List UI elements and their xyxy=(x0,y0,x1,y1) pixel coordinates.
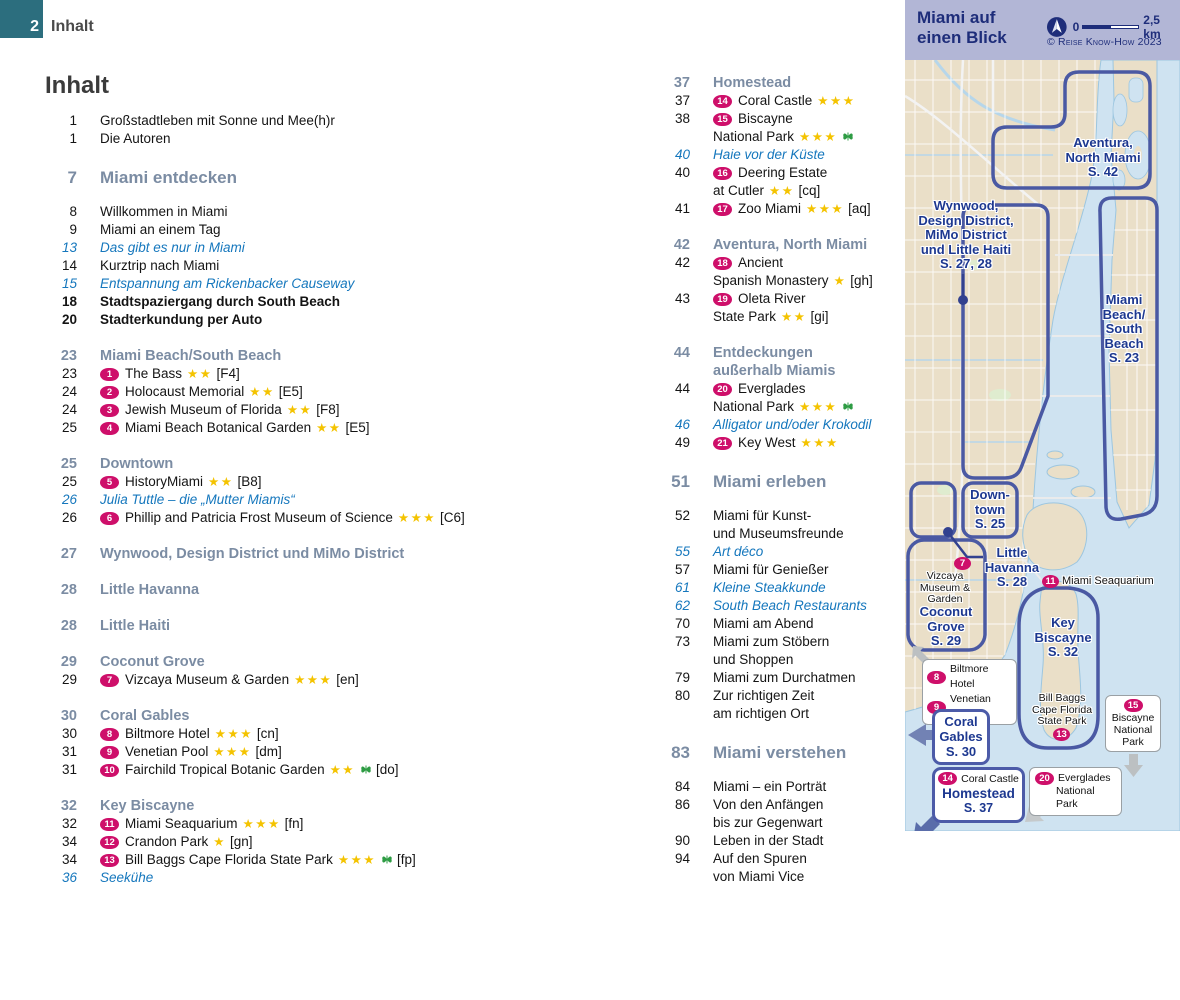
callout-coral-gables-text: Coral Gables S. 30 xyxy=(935,712,987,759)
toc-row: 18 Stadtspaziergang durch South Beach xyxy=(45,293,635,311)
toc-row: 83 Miami verstehen xyxy=(658,743,903,763)
toc-row: 84 Miami – ein Porträt xyxy=(658,778,903,796)
toc-row: 20 Stadterkundung per Auto xyxy=(45,311,635,329)
page-number-tab: 2 xyxy=(0,0,43,38)
toc-row: 40 Haie vor der Küste xyxy=(658,146,903,164)
toc-page-number xyxy=(658,868,690,886)
map-badge-everglades: 20 xyxy=(1035,772,1054,785)
toc-row: und Shoppen xyxy=(658,651,903,669)
toc-row: 70 Miami am Abend xyxy=(658,615,903,633)
toc-row: 24 2Holocaust Memorial★★[E5] xyxy=(45,383,635,401)
map-grid-ref: [F8] xyxy=(316,402,339,417)
toc-row: 23 1The Bass★★[F4] xyxy=(45,365,635,383)
toc-page-number: 37 xyxy=(658,74,690,92)
toc-entry-text: Aventura, North Miami xyxy=(713,237,867,253)
toc-row: at Cutler★★[cq] xyxy=(658,182,903,200)
rating-stars: ★★★ xyxy=(338,853,376,867)
toc-page-number: 34 xyxy=(45,833,77,851)
toc-page-number xyxy=(658,308,690,326)
rating-stars: ★★★ xyxy=(817,94,855,108)
poi-badge: 11 xyxy=(100,818,119,831)
poi-badge: 5 xyxy=(100,476,119,489)
toc-entry-text: South Beach Restaurants xyxy=(713,598,867,613)
poi-badge: 7 xyxy=(100,674,119,687)
toc-entry-text: Oleta River xyxy=(738,291,806,306)
toc-entry-text: Zoo Miami xyxy=(738,201,801,216)
toc-page-number: 80 xyxy=(658,687,690,705)
toc-page-number: 44 xyxy=(658,344,690,362)
toc-entry-text: Fairchild Tropical Botanic Garden xyxy=(125,762,325,777)
toc-row: 34 13Bill Baggs Cape Florida State Park★… xyxy=(45,851,635,869)
toc-row: 25 4Miami Beach Botanical Garden★★[E5] xyxy=(45,419,635,437)
toc-entry-text: Wynwood, Design District und MiMo Distri… xyxy=(100,546,404,562)
toc-page-number: 70 xyxy=(658,615,690,633)
toc-page-number: 41 xyxy=(658,200,690,218)
toc-row: 27 Wynwood, Design District und MiMo Dis… xyxy=(45,545,635,563)
toc-page-number: 73 xyxy=(658,633,690,651)
toc-entry-text: Zur richtigen Zeit xyxy=(713,688,814,703)
toc-row: 51 Miami erleben xyxy=(658,472,903,492)
callout-biltmore-text: Biltmore Hotel xyxy=(950,662,1012,692)
map-grid-ref: [gh] xyxy=(850,273,873,288)
scale-bar-filled xyxy=(1082,25,1110,29)
toc-entry-text: Julia Tuttle – die „Mutter Miamis“ xyxy=(100,492,295,507)
map-grid-ref: [B8] xyxy=(237,474,261,489)
toc-entry-text: Miami für Genießer xyxy=(713,562,829,577)
page-title: Inhalt xyxy=(45,72,109,100)
toc-entry-text: Kleine Steakkunde xyxy=(713,580,826,595)
map-grid-ref: [E5] xyxy=(279,384,303,399)
toc-page-number: 31 xyxy=(45,743,77,761)
toc-entry-text: Miami zum Stöbern xyxy=(713,634,829,649)
poi-badge: 15 xyxy=(713,113,732,126)
rating-stars: ★★ xyxy=(781,310,806,324)
toc-entry-text: Leben in der Stadt xyxy=(713,833,823,848)
toc-entry-text: Miami entdecken xyxy=(100,168,237,187)
toc-entry-text: Deering Estate xyxy=(738,165,827,180)
toc-entry-text: Everglades xyxy=(738,381,806,396)
toc-entry-text: Von den Anfängen xyxy=(713,797,823,812)
toc-row: National Park★★★ xyxy=(658,128,903,146)
map-grid-ref: [do] xyxy=(376,762,399,777)
toc-page-number xyxy=(658,705,690,723)
toc-page-number: 44 xyxy=(658,380,690,398)
rating-stars: ★★ xyxy=(330,763,355,777)
callout-everglades-line1: Everglades xyxy=(1058,772,1111,785)
toc-row: 52 Miami für Kunst- xyxy=(658,507,903,525)
toc-row: 26 Julia Tuttle – die „Mutter Miamis“ xyxy=(45,491,635,509)
toc-page-number: 79 xyxy=(658,669,690,687)
poi-badge: 3 xyxy=(100,404,119,417)
toc-page-number: 40 xyxy=(658,164,690,182)
toc-page-number: 62 xyxy=(658,597,690,615)
toc-entry-text: National Park xyxy=(713,399,794,414)
toc-page-number xyxy=(658,272,690,290)
toc-row: am richtigen Ort xyxy=(658,705,903,723)
toc-row: 36 Seekühe xyxy=(45,869,635,887)
toc-entry-text: Miami an einem Tag xyxy=(100,222,221,237)
toc-row: Spanish Monastery★[gh] xyxy=(658,272,903,290)
toc-entry-text: Biscayne xyxy=(738,111,793,126)
toc-row: 46 Alligator und/oder Krokodil xyxy=(658,416,903,434)
toc-row: 8 Willkommen in Miami xyxy=(45,203,635,221)
toc-row: 41 17Zoo Miami★★★[aq] xyxy=(658,200,903,218)
toc-entry-text: Vizcaya Museum & Garden xyxy=(125,672,289,687)
toc-row: 61 Kleine Steakkunde xyxy=(658,579,903,597)
poi-badge: 10 xyxy=(100,764,119,777)
nature-icon xyxy=(360,764,372,775)
page-corner-header: 2 Inhalt xyxy=(0,0,94,38)
toc-page-number: 32 xyxy=(45,815,77,833)
callout-everglades: 20 Everglades National Park xyxy=(1029,767,1122,816)
toc-entry-text: Miami – ein Porträt xyxy=(713,779,826,794)
rating-stars: ★★★ xyxy=(806,202,844,216)
toc-page-number: 25 xyxy=(45,473,77,491)
page-number: 2 xyxy=(30,18,43,38)
toc-row: 32 11Miami Seaquarium★★★[fn] xyxy=(45,815,635,833)
toc-row: 7 Miami entdecken xyxy=(45,168,635,188)
map-header: Miami auf einen Blick 0 2,5 km © Reise K… xyxy=(905,0,1180,60)
map-grid-ref: [C6] xyxy=(440,510,465,525)
poi-badge: 20 xyxy=(713,383,732,396)
toc-page-number: 27 xyxy=(45,545,77,563)
toc-row: 13 Das gibt es nur in Miami xyxy=(45,239,635,257)
map-badge-seaquarium: 11 xyxy=(1042,575,1059,588)
toc-row: 73 Miami zum Stöbern xyxy=(658,633,903,651)
map-badge-homestead: 14 xyxy=(938,772,957,785)
toc-entry-text: The Bass xyxy=(125,366,182,381)
map-body: Wynwood, Design District, MiMo District … xyxy=(905,60,1180,831)
toc-row: bis zur Gegenwart xyxy=(658,814,903,832)
toc-page-number: 49 xyxy=(658,434,690,452)
rating-stars: ★★★ xyxy=(294,673,332,687)
toc-page-number xyxy=(658,525,690,543)
toc-page-number: 1 xyxy=(45,130,77,148)
toc-entry-text: Spanish Monastery xyxy=(713,273,829,288)
toc-page-number: 94 xyxy=(658,850,690,868)
poi-badge: 6 xyxy=(100,512,119,525)
toc-row: 30 Coral Gables xyxy=(45,707,635,725)
map-label-vizcaya: Vizcaya Museum & Garden xyxy=(913,571,977,606)
toc-entry-text: State Park xyxy=(713,309,776,324)
poi-badge: 2 xyxy=(100,386,119,399)
rating-stars: ★ xyxy=(834,274,847,288)
poi-badge: 1 xyxy=(100,368,119,381)
toc-row: 14 Kurztrip nach Miami xyxy=(45,257,635,275)
toc-page-number xyxy=(658,362,690,380)
toc-entry-text: Miami erleben xyxy=(713,472,826,491)
toc-page-number: 51 xyxy=(658,472,690,492)
map-grid-ref: [gi] xyxy=(810,309,828,324)
toc-entry-text: Alligator und/oder Krokodil xyxy=(713,417,871,432)
toc-page-number: 28 xyxy=(45,581,77,599)
nature-icon xyxy=(842,131,854,142)
map-copyright: © Reise Know-How 2023 xyxy=(1047,36,1162,48)
toc-entry-text: am richtigen Ort xyxy=(713,706,809,721)
toc-entry-text: und Shoppen xyxy=(713,652,793,667)
toc-row: 90 Leben in der Stadt xyxy=(658,832,903,850)
toc-row: 25 5HistoryMiami★★[B8] xyxy=(45,473,635,491)
callout-homestead: 14Coral Castle Homestead S. 37 xyxy=(932,767,1025,823)
toc-page-number: 29 xyxy=(45,653,77,671)
callout-biscayne-np: 15 Biscayne National Park xyxy=(1105,695,1161,752)
rating-stars: ★★ xyxy=(187,367,212,381)
toc-page-number: 86 xyxy=(658,796,690,814)
rating-stars: ★★★ xyxy=(215,727,253,741)
toc-row: 42 Aventura, North Miami xyxy=(658,236,903,254)
toc-row: 42 18Ancient xyxy=(658,254,903,272)
rating-stars: ★ xyxy=(213,835,226,849)
toc-page-number xyxy=(658,814,690,832)
rating-stars: ★★★ xyxy=(398,511,436,525)
toc-row: 37 Homestead xyxy=(658,74,903,92)
toc-page-number: 25 xyxy=(45,419,77,437)
toc-entry-text: Key Biscayne xyxy=(100,798,194,814)
toc-page-number: 15 xyxy=(45,275,77,293)
rating-stars: ★★ xyxy=(287,403,312,417)
page-header-label: Inhalt xyxy=(51,18,94,38)
nature-icon xyxy=(842,401,854,412)
toc-entry-text: Little Haiti xyxy=(100,618,170,634)
toc-row: 37 14Coral Castle★★★ xyxy=(658,92,903,110)
toc-page-number: 7 xyxy=(45,168,77,188)
toc-entry-text: Miami Beach/South Beach xyxy=(100,348,281,364)
map-label-downtown: Down- town S. 25 xyxy=(965,488,1015,532)
toc-row: von Miami Vice xyxy=(658,868,903,886)
toc-row: 24 3Jewish Museum of Florida★★[F8] xyxy=(45,401,635,419)
poi-badge: 17 xyxy=(713,203,732,216)
toc-page-number: 40 xyxy=(658,146,690,164)
toc-entry-text: Entdeckungen xyxy=(713,345,813,361)
map-grid-ref: [F4] xyxy=(216,366,239,381)
toc-entry-text: Coral Castle xyxy=(738,93,812,108)
toc-entry-text: Das gibt es nur in Miami xyxy=(100,240,245,255)
toc-entry-text: Die Autoren xyxy=(100,131,171,146)
toc-page-number xyxy=(658,651,690,669)
toc-page-number: 34 xyxy=(45,851,77,869)
toc-entry-text: Downtown xyxy=(100,456,173,472)
rating-stars: ★★★ xyxy=(799,130,837,144)
toc-row: 79 Miami zum Durchatmen xyxy=(658,669,903,687)
toc-page-number: 38 xyxy=(658,110,690,128)
map-badge-bill-baggs: 13 xyxy=(1053,728,1070,741)
toc-row: 31 10Fairchild Tropical Botanic Garden★★… xyxy=(45,761,635,779)
toc-page-number: 26 xyxy=(45,491,77,509)
toc-page-number: 32 xyxy=(45,797,77,815)
map-grid-ref: [cq] xyxy=(798,183,820,198)
toc-row: 86 Von den Anfängen xyxy=(658,796,903,814)
toc-row: 40 16Deering Estate xyxy=(658,164,903,182)
toc-entry-text: außerhalb Miamis xyxy=(713,363,835,379)
toc-page-number: 13 xyxy=(45,239,77,257)
toc-entry-text: von Miami Vice xyxy=(713,869,804,884)
toc-row: 32 Key Biscayne xyxy=(45,797,635,815)
map-badge-biltmore: 8 xyxy=(927,671,946,684)
toc-page-number: 37 xyxy=(658,92,690,110)
map-grid-ref: [aq] xyxy=(848,201,871,216)
toc-page-number: 46 xyxy=(658,416,690,434)
toc-page-number: 55 xyxy=(658,543,690,561)
scale-bar-empty xyxy=(1111,25,1140,29)
toc-entry-text: HistoryMiami xyxy=(125,474,203,489)
toc-page-number: 23 xyxy=(45,347,77,365)
toc-entry-text: Haie vor der Küste xyxy=(713,147,825,162)
toc-row: 28 Little Havanna xyxy=(45,581,635,599)
toc-row: 55 Art déco xyxy=(658,543,903,561)
map-label-aventura: Aventura, North Miami S. 42 xyxy=(1061,136,1145,180)
toc-entry-text: Miami zum Durchatmen xyxy=(713,670,856,685)
toc-page-number: 24 xyxy=(45,401,77,419)
toc-entry-text: Homestead xyxy=(713,75,791,91)
toc-entry-text: Miami Beach Botanical Garden xyxy=(125,420,311,435)
map-grid-ref: [en] xyxy=(336,672,359,687)
toc-page-number: 30 xyxy=(45,707,77,725)
map-grid-ref: [E5] xyxy=(346,420,370,435)
callout-biscayne-np-text: Biscayne National Park xyxy=(1107,712,1159,748)
toc-entry-text: Little Havanna xyxy=(100,582,199,598)
toc-row: 30 8Biltmore Hotel★★★[cn] xyxy=(45,725,635,743)
toc-page-number: 25 xyxy=(45,455,77,473)
toc-page-number: 23 xyxy=(45,365,77,383)
callout-coral-gables: Coral Gables S. 30 xyxy=(932,709,990,765)
toc-row: 34 12Crandon Park★[gn] xyxy=(45,833,635,851)
toc-page-number xyxy=(658,182,690,200)
toc-page-number: 30 xyxy=(45,725,77,743)
toc-entry-text: Großstadtleben mit Sonne und Mee(h)r xyxy=(100,113,335,128)
toc-page-number: 90 xyxy=(658,832,690,850)
toc-page-number: 18 xyxy=(45,293,77,311)
poi-badge: 12 xyxy=(100,836,119,849)
poi-badge: 19 xyxy=(713,293,732,306)
toc-entry-text: Biltmore Hotel xyxy=(125,726,210,741)
toc-page-number: 36 xyxy=(45,869,77,887)
nature-icon xyxy=(381,854,393,865)
toc-page-number: 9 xyxy=(45,221,77,239)
poi-badge: 21 xyxy=(713,437,732,450)
map-label-key-biscayne: Key Biscayne S. 32 xyxy=(1033,616,1093,660)
rating-stars: ★★ xyxy=(316,421,341,435)
toc-row: 62 South Beach Restaurants xyxy=(658,597,903,615)
toc-entry-text: Bill Baggs Cape Florida State Park xyxy=(125,852,333,867)
rating-stars: ★★★ xyxy=(801,436,839,450)
toc-row: 31 9Venetian Pool★★★[dm] xyxy=(45,743,635,761)
toc-entry-text: Stadtspaziergang durch South Beach xyxy=(100,294,340,309)
toc-entry-text: Coconut Grove xyxy=(100,654,205,670)
toc-row: 9 Miami an einem Tag xyxy=(45,221,635,239)
toc-row: 25 Downtown xyxy=(45,455,635,473)
toc-entry-text: Ancient xyxy=(738,255,783,270)
toc-page-number: 14 xyxy=(45,257,77,275)
toc-entry-text: National Park xyxy=(713,129,794,144)
toc-page-number: 26 xyxy=(45,509,77,527)
toc-page-number: 52 xyxy=(658,507,690,525)
toc-entry-text: bis zur Gegenwart xyxy=(713,815,823,830)
toc-entry-text: Venetian Pool xyxy=(125,744,208,759)
toc-row: 29 Coconut Grove xyxy=(45,653,635,671)
poi-badge: 4 xyxy=(100,422,119,435)
toc-row: 57 Miami für Genießer xyxy=(658,561,903,579)
map-label-little-havanna: Little Havanna S. 28 xyxy=(979,546,1045,590)
map-grid-ref: [dm] xyxy=(255,744,281,759)
map-grid-ref: [cn] xyxy=(257,726,279,741)
toc-entry-text: und Museumsfreunde xyxy=(713,526,844,541)
map-badge-biscayne-np: 15 xyxy=(1124,699,1143,712)
map-label-wynwood: Wynwood, Design District, MiMo District … xyxy=(911,199,1021,272)
toc-page-number: 83 xyxy=(658,743,690,763)
callout-homestead-page: S. 37 xyxy=(935,801,1022,815)
poi-badge: 13 xyxy=(100,854,119,867)
toc-entry-text: Kurztrip nach Miami xyxy=(100,258,219,273)
toc-row: 1 Großstadtleben mit Sonne und Mee(h)r xyxy=(45,112,635,130)
toc-row: 15 Entspannung am Rickenbacker Causeway xyxy=(45,275,635,293)
toc-row: State Park★★[gi] xyxy=(658,308,903,326)
toc-page-number: 20 xyxy=(45,311,77,329)
rating-stars: ★★ xyxy=(208,475,233,489)
toc-page-number: 8 xyxy=(45,203,77,221)
rating-stars: ★★★ xyxy=(213,745,251,759)
toc-entry-text: Holocaust Memorial xyxy=(125,384,244,399)
callout-homestead-line1: Coral Castle xyxy=(961,773,1019,785)
scale-zero: 0 xyxy=(1073,20,1080,34)
toc-row: und Museumsfreunde xyxy=(658,525,903,543)
toc-entry-text: Willkommen in Miami xyxy=(100,204,228,219)
rating-stars: ★★★ xyxy=(243,817,281,831)
map-grid-ref: [fn] xyxy=(285,816,304,831)
map-title: Miami auf einen Blick xyxy=(917,8,1007,48)
poi-badge: 9 xyxy=(100,746,119,759)
map-panel: Miami auf einen Blick 0 2,5 km © Reise K… xyxy=(905,0,1180,831)
poi-badge: 14 xyxy=(713,95,732,108)
toc-entry-text: Miami für Kunst- xyxy=(713,508,811,523)
toc-entry-text: Jewish Museum of Florida xyxy=(125,402,282,417)
toc-page-number: 24 xyxy=(45,383,77,401)
toc-row: 26 6Phillip and Patricia Frost Museum of… xyxy=(45,509,635,527)
toc-entry-text: Phillip and Patricia Frost Museum of Sci… xyxy=(125,510,393,525)
toc-row: 43 19Oleta River xyxy=(658,290,903,308)
toc-entry-text: Auf den Spuren xyxy=(713,851,807,866)
toc-column-left: 1 Großstadtleben mit Sonne und Mee(h)r 1… xyxy=(45,112,635,887)
toc-page-number xyxy=(658,398,690,416)
callout-everglades-line2: National Park xyxy=(1056,785,1118,811)
toc-page-number xyxy=(658,128,690,146)
toc-entry-text: Key West xyxy=(738,435,796,450)
toc-row: National Park★★★ xyxy=(658,398,903,416)
toc-entry-text: Coral Gables xyxy=(100,708,189,724)
rating-stars: ★★ xyxy=(249,385,274,399)
toc-entry-text: Stadterkundung per Auto xyxy=(100,312,262,327)
toc-entry-text: Miami Seaquarium xyxy=(125,816,238,831)
toc-row: 38 15Biscayne xyxy=(658,110,903,128)
poi-badge: 8 xyxy=(100,728,119,741)
compass-icon xyxy=(1046,16,1068,38)
map-label-bill-baggs: Bill Baggs Cape Florida State Park xyxy=(1029,693,1095,728)
toc-page-number: 42 xyxy=(658,254,690,272)
toc-row: 23 Miami Beach/South Beach xyxy=(45,347,635,365)
map-label-seaquarium: Miami Seaquarium xyxy=(1062,576,1172,588)
toc-page-number: 61 xyxy=(658,579,690,597)
toc-entry-text: Miami am Abend xyxy=(713,616,814,631)
map-grid-ref: [gn] xyxy=(230,834,253,849)
toc-entry-text: at Cutler xyxy=(713,183,764,198)
toc-page-number: 43 xyxy=(658,290,690,308)
rating-stars: ★★★ xyxy=(799,400,837,414)
rating-stars: ★★ xyxy=(769,184,794,198)
toc-entry-text: Seekühe xyxy=(100,870,153,885)
toc-row: 29 7Vizcaya Museum & Garden★★★[en] xyxy=(45,671,635,689)
toc-entry-text: Entspannung am Rickenbacker Causeway xyxy=(100,276,354,291)
map-badge-vizcaya: 7 xyxy=(954,557,971,570)
map-grid-ref: [fp] xyxy=(397,852,416,867)
